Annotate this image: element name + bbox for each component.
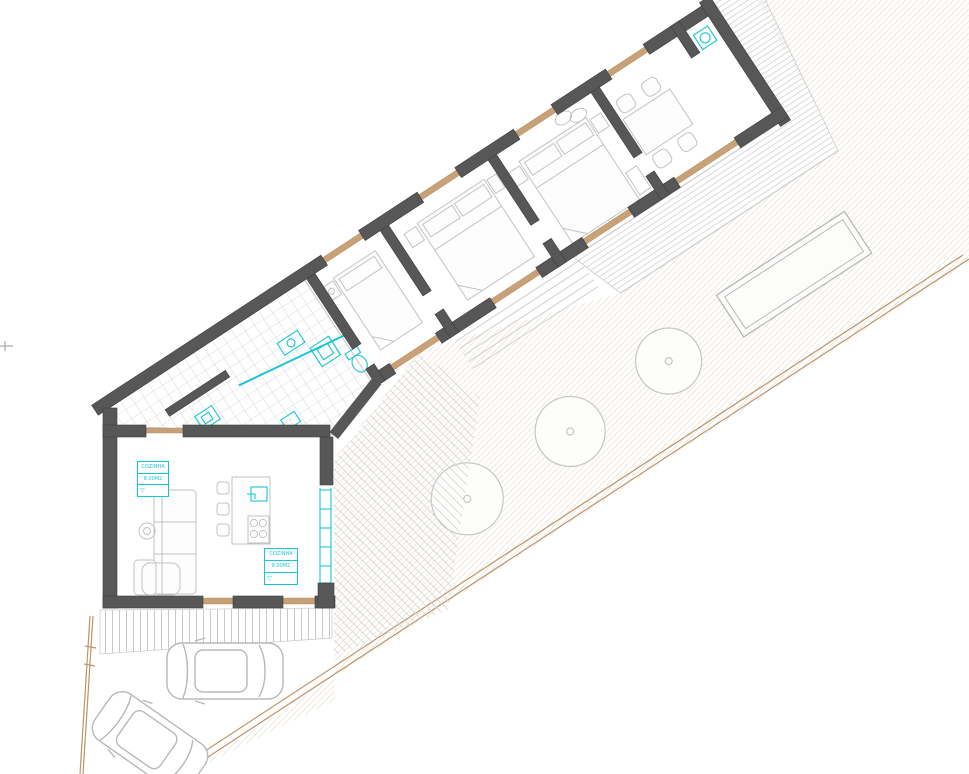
room-label-living-level: ▽ [138, 484, 168, 496]
floor-plan-drawing [0, 0, 969, 774]
bar-stool [217, 503, 229, 515]
room-label-living: COZINHA 8.00M2 ▽ [137, 461, 169, 497]
living-west-wall [103, 408, 117, 608]
washing-machine [693, 26, 717, 50]
dining-chair [615, 92, 638, 115]
room-label-living-name: COZINHA [138, 462, 168, 473]
dining-chair [676, 131, 699, 154]
plant [139, 523, 155, 539]
bar-stool [217, 482, 229, 494]
living-east-wall-bottom [318, 583, 334, 608]
living-east-wall-top [320, 437, 333, 485]
room-label-kitchen-level: ▽ [265, 572, 297, 584]
dining-chair [651, 147, 674, 170]
room-label-kitchen-area: 9.00M2 [265, 560, 297, 572]
room-label-living-area: 8.00M2 [138, 473, 168, 485]
living-kitchen-block [103, 408, 335, 608]
bar-stool [217, 524, 229, 536]
car-1 [167, 638, 283, 704]
sofa-body [154, 490, 196, 594]
edge-tick-mark [0, 341, 13, 351]
laundry-fixtures [693, 26, 717, 50]
glass-shelving [320, 488, 331, 583]
room-label-kitchen-name: COZINHA [265, 549, 297, 560]
dining-furniture [612, 72, 704, 171]
washing-machine-drum [698, 31, 712, 45]
room-label-kitchen: COZINHA 9.00M2 ▽ [264, 548, 298, 585]
dining-chair [640, 76, 663, 99]
floor-plan-canvas: COZINHA 8.00M2 ▽ COZINHA 9.00M2 ▽ [0, 0, 969, 774]
entry-door-sill [146, 428, 183, 433]
parked-cars [84, 638, 283, 774]
